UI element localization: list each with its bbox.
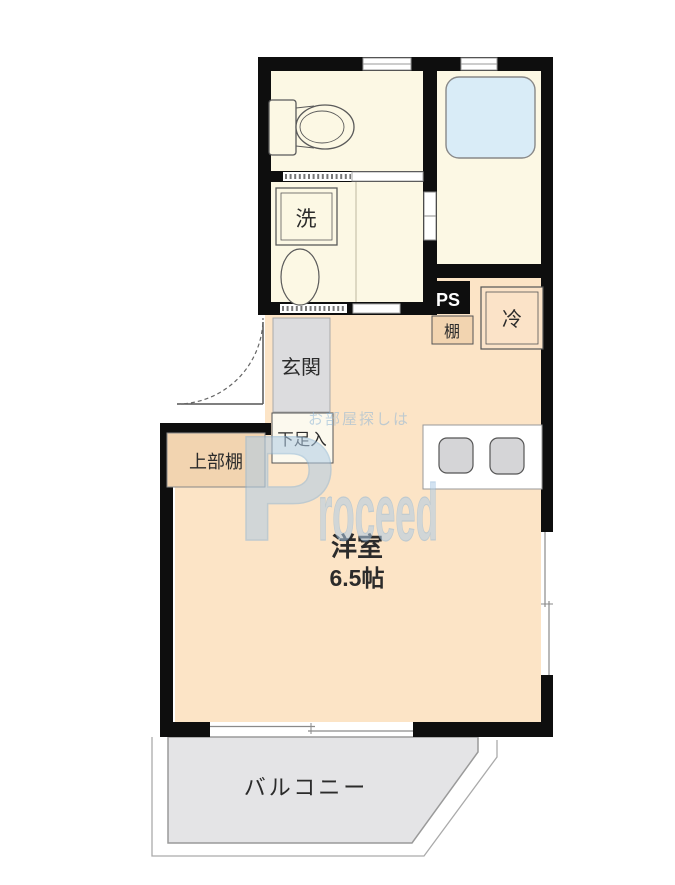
upper-shelf-label: 上部棚: [189, 452, 243, 472]
bathtub-icon: [446, 77, 535, 158]
floorplan-image: バルコニー: [0, 0, 675, 880]
entrance-door-swing-icon: [177, 318, 263, 404]
balcony: バルコニー: [152, 737, 497, 856]
sink-icon: [281, 249, 319, 305]
refrigerator-label: 冷: [502, 308, 522, 331]
bathroom: [446, 77, 535, 158]
washing-machine-icon: 洗: [276, 188, 337, 245]
stove-burner-icon: [439, 438, 473, 473]
refrigerator-box: 冷: [481, 287, 543, 349]
stove-burner-icon: [490, 438, 524, 474]
shelf-label: 棚: [444, 323, 460, 341]
partition-strip: [353, 304, 400, 313]
entrance: 玄関: [177, 318, 330, 412]
partition-strip: [352, 172, 423, 181]
entrance-label: 玄関: [281, 356, 321, 379]
washer-label: 洗: [296, 208, 317, 231]
pipe-space-label: PS: [436, 290, 460, 310]
main-room-size: 6.5帖: [330, 565, 385, 591]
shelf-box: 棚: [432, 316, 473, 344]
kitchen-counter: [423, 425, 542, 489]
watermark-logo-rest: roceed: [318, 468, 438, 557]
floor-plan-svg: バルコニー: [0, 0, 675, 880]
accordion-door-icon: [280, 304, 347, 313]
balcony-label: バルコニー: [244, 775, 369, 800]
